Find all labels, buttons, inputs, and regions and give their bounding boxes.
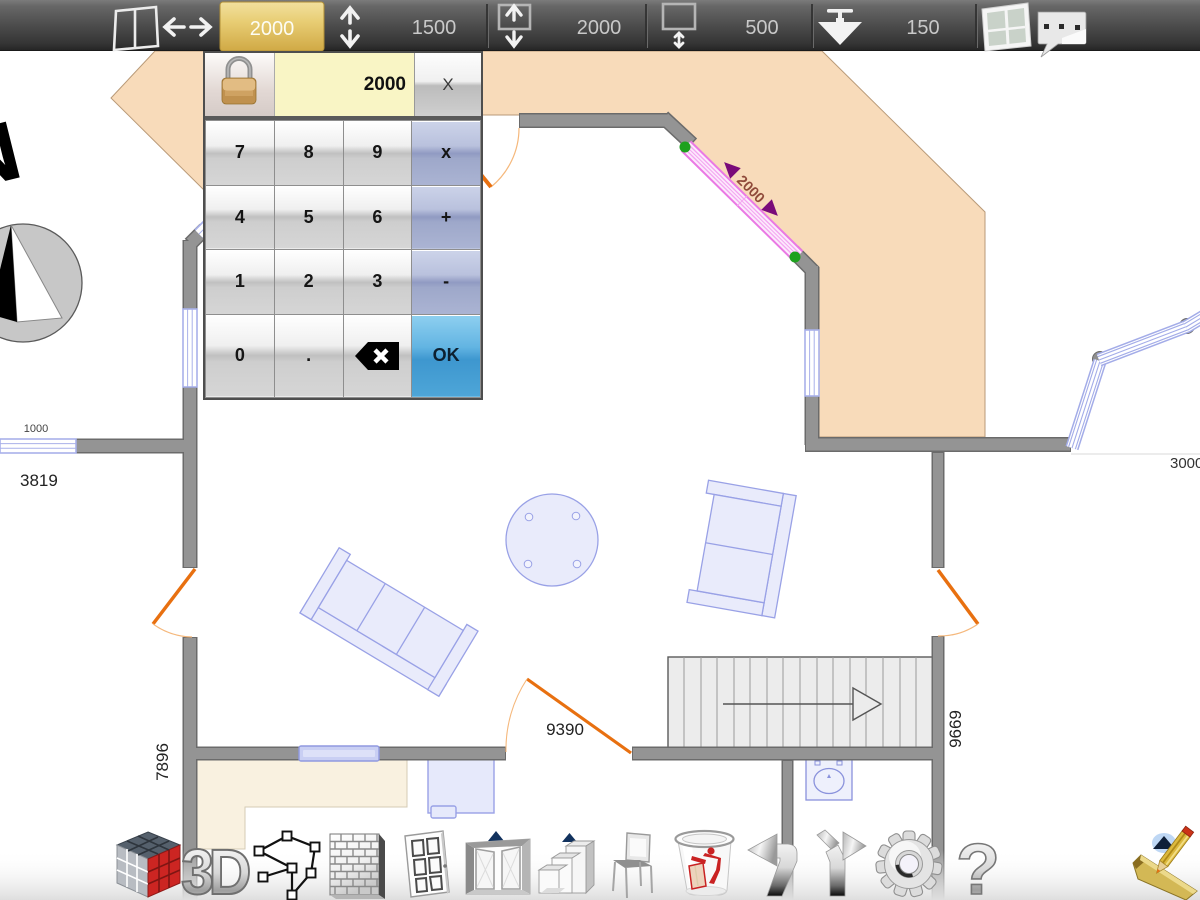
svg-text:3000: 3000: [1170, 455, 1200, 472]
svg-text:150: 150: [906, 17, 939, 39]
svg-text:1500: 1500: [412, 17, 457, 39]
svg-text:3D: 3D: [181, 837, 250, 900]
svg-text:7896: 7896: [153, 743, 172, 781]
svg-text:1000: 1000: [24, 423, 48, 435]
svg-text:2000: 2000: [577, 17, 622, 39]
svg-text:3819: 3819: [20, 471, 58, 490]
svg-text:2000: 2000: [250, 18, 295, 40]
svg-text:9669: 9669: [946, 710, 965, 748]
svg-text:500: 500: [745, 17, 778, 39]
svg-text:?: ?: [956, 830, 1000, 900]
svg-text:9390: 9390: [546, 720, 584, 739]
